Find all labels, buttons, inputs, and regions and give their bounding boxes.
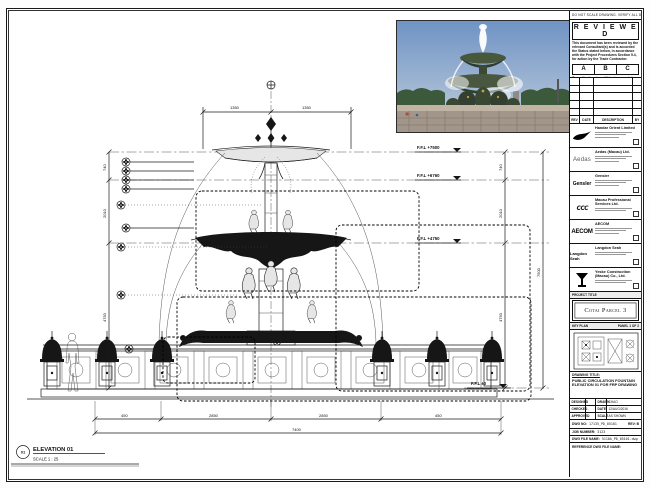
- date-label: DATE: [596, 406, 607, 412]
- gensler-logo: Gensler: [570, 172, 594, 195]
- address-lines: [595, 230, 626, 231]
- drawing-sheet-page: 1350 1350: [0, 0, 650, 488]
- drawing-title-label: DRAWING TITLE:: [572, 373, 639, 377]
- title-block-column: DO NOT SCALE DRAWING. VERIFY ALL DIMENSI…: [569, 11, 641, 477]
- address-lines: [595, 161, 619, 162]
- frp-scope-boxes: [163, 191, 531, 401]
- status-option-c: C: [617, 65, 638, 74]
- address-lines: [595, 254, 626, 255]
- designed-value: [586, 399, 596, 405]
- job-number-label: JOB NUMBER:: [572, 430, 595, 434]
- consultant-name: Aedas (Macau) Ltd.: [595, 150, 639, 154]
- address-lines: [595, 132, 632, 133]
- elevation-bubble-number: 01: [21, 450, 26, 455]
- dim-bottom-1: 450: [121, 413, 128, 418]
- key-plan-drawing: [570, 330, 641, 372]
- reviewed-stamp-paragraph-1: This document has been reviewed by the r…: [572, 42, 639, 62]
- dim-left-1: 740: [102, 164, 107, 171]
- dim-left-3: 4750: [102, 312, 107, 322]
- checked-value: -: [586, 406, 596, 412]
- checked-label: CHECKED: [570, 406, 586, 412]
- address-lines: [595, 228, 632, 229]
- consultant-name: Langdon Seah: [595, 246, 639, 250]
- date-value: 12/AUG/2016: [607, 406, 641, 412]
- consultant-list: Handar Orient Limited Aedas Aedas (Macau…: [570, 124, 641, 292]
- revision-table: REV DATE DESCRIPTION BY: [570, 78, 641, 124]
- consultant-checkbox: [633, 187, 639, 193]
- dwg-no-value: 17135_PD_05101: [589, 422, 617, 426]
- dim-bottom-total: 7400: [292, 427, 302, 432]
- handar-bird-logo-icon: [570, 124, 594, 147]
- consultant-checkbox: [633, 235, 639, 241]
- address-lines: [595, 158, 626, 159]
- job-number-row: JOB NUMBER: 3123: [570, 429, 641, 436]
- yeske-glass-logo-icon: [570, 268, 594, 291]
- dwg-file-value: 5110A_PD_05101.dwg: [602, 437, 638, 441]
- address-lines: [595, 210, 626, 211]
- finial-ornament: [255, 117, 287, 149]
- dwg-number-row: DWG NO: 17135_PD_05101 REV: B: [570, 420, 641, 429]
- elevation-label: ELEVATION 01: [33, 447, 74, 453]
- consultant-row-aedas: Aedas Aedas (Macau) Ltd.: [570, 148, 641, 172]
- level-7500: F.F.L +7500: [417, 145, 440, 150]
- key-plan-panel-note: PANEL 1 OF 2: [618, 323, 639, 329]
- consultant-checkbox: [633, 163, 639, 169]
- approved-scale-row: APPROVED - SCALE AS SHOWN: [570, 413, 641, 419]
- consultant-checkbox: [633, 283, 639, 289]
- approved-label: APPROVED: [570, 413, 586, 419]
- level-6760: F.F.L +6760: [417, 173, 440, 178]
- address-lines: [595, 282, 626, 283]
- level-4750: F.F.L +4750: [417, 236, 440, 241]
- dim-bottom-4: 450: [435, 413, 442, 418]
- scale-value: AS SHOWN: [607, 413, 641, 419]
- drawing-title: PUBLIC CIRCULATION FOUNTAIN ELEVATION 01…: [572, 379, 639, 389]
- reviewed-stamp: R E V I E W E D This document has been r…: [570, 20, 641, 78]
- consultant-name: Gensler: [595, 174, 639, 178]
- dim-left-2: 2010: [102, 208, 107, 218]
- top-dimension: 1350 1350: [201, 105, 354, 149]
- consultant-row-gensler: Gensler Gensler: [570, 172, 641, 196]
- level-zero: F.F.L ±0: [471, 381, 487, 386]
- bottom-dimension-chains: 450 2850 2850 450 7400: [93, 401, 504, 436]
- revision-header-row: REV DATE DESCRIPTION BY: [570, 116, 641, 123]
- address-lines: [595, 208, 632, 209]
- revision-row: [570, 109, 641, 117]
- date-col-header: DATE: [580, 116, 594, 123]
- elevation-scale-note: SCALE 1 : 25: [33, 457, 59, 462]
- drawing-title-block: DRAWING TITLE: PUBLIC CIRCULATION FOUNTA…: [570, 372, 641, 399]
- consultant-name: Handar Orient Limited: [595, 126, 639, 130]
- address-lines: [595, 156, 632, 157]
- approved-value: -: [586, 413, 596, 419]
- consultant-row-langdon-seah: Langdon Seah Langdon Seah: [570, 244, 641, 268]
- job-number-value: 3123: [597, 430, 605, 434]
- checked-date-row: CHECKED - DATE 12/AUG/2016: [570, 406, 641, 413]
- consultant-name: AECOM: [595, 222, 639, 226]
- address-lines: [595, 280, 632, 281]
- reviewed-stamp-title: R E V I E W E D: [572, 22, 639, 40]
- by-col-header: BY: [633, 116, 641, 123]
- signature-fields-table: DESIGNED DRAWN CHAO CHECKED - DATE 12/AU…: [570, 399, 641, 420]
- designed-label: DESIGNED: [570, 399, 586, 405]
- dim-top-right: 1350: [302, 105, 312, 110]
- consultant-checkbox: [633, 139, 639, 145]
- address-lines: [595, 182, 626, 183]
- designed-drawn-row: DESIGNED DRAWN CHAO: [570, 399, 641, 406]
- address-lines: [595, 137, 619, 138]
- key-plan-strip: KEY PLAN PANEL 1 OF 2: [570, 323, 641, 330]
- dim-right-1: 740: [498, 164, 503, 171]
- consultant-name: Yeske Construction (Macau) Co., Ltd.: [595, 270, 639, 278]
- dim-top-left: 1350: [230, 105, 240, 110]
- drawn-value: CHAO: [607, 399, 641, 405]
- description-col-header: DESCRIPTION: [594, 116, 633, 123]
- scale-label: SCALE: [596, 413, 607, 419]
- address-lines: [595, 134, 626, 135]
- project-title-strip: PROJECT TITLE: [570, 292, 641, 299]
- revision-row: [570, 86, 641, 94]
- revision-row: [570, 93, 641, 101]
- consultant-row-mps: ccc Macau Professional Services Ltd.: [570, 196, 641, 220]
- dwg-no-label: DWG NO:: [572, 422, 587, 426]
- address-lines: [595, 252, 632, 253]
- aecom-logo: AECOM: [570, 220, 594, 243]
- reference-photo: [396, 20, 570, 133]
- project-name: Cotai Parcel 3: [572, 300, 639, 321]
- dwg-file-label: DWG FILE NAME:: [572, 437, 600, 441]
- consultant-row-handar: Handar Orient Limited: [570, 124, 641, 148]
- reference-file-row: REFERENCE DWG FILE NAME:: [570, 443, 641, 450]
- key-plan-label: KEY PLAN: [572, 323, 588, 329]
- consultant-row-contractor: Yeske Construction (Macau) Co., Ltd.: [570, 268, 641, 292]
- status-option-a: A: [573, 65, 595, 74]
- dim-right-2: 2010: [498, 208, 503, 218]
- rev-col-header: REV: [570, 116, 580, 123]
- drawn-label: DRAWN: [596, 399, 607, 405]
- right-dimension-chains: 740 2010 4750 7500: [498, 150, 546, 391]
- mps-logo: ccc: [570, 196, 594, 219]
- revision-row: [570, 78, 641, 86]
- dwg-file-row: DWG FILE NAME: 5110A_PD_05101.dwg: [570, 436, 641, 443]
- note-strip: DO NOT SCALE DRAWING. VERIFY ALL DIMENSI…: [570, 11, 641, 20]
- dim-bottom-3: 2850: [319, 413, 329, 418]
- consultant-checkbox: [633, 259, 639, 265]
- consultant-name: Macau Professional Services Ltd.: [595, 198, 639, 206]
- consultant-checkbox: [633, 211, 639, 217]
- rev-label: REV:: [628, 422, 636, 426]
- status-option-row: A B C: [572, 64, 639, 75]
- langdon-seah-logo: Langdon Seah: [570, 244, 594, 267]
- status-option-b: B: [595, 65, 617, 74]
- revision-row: [570, 101, 641, 109]
- mid-tier-figures: [249, 210, 293, 233]
- reference-file-label: REFERENCE DWG FILE NAME:: [572, 445, 621, 449]
- dim-right-3: 4750: [498, 312, 503, 322]
- scale-figure: [66, 333, 79, 391]
- dim-bottom-2: 2850: [209, 413, 219, 418]
- consultant-row-aecom: AECOM AECOM: [570, 220, 641, 244]
- aedas-logo: Aedas: [570, 148, 594, 171]
- address-lines: [595, 180, 632, 181]
- rev-value: B: [637, 422, 639, 426]
- elevation-title: 01 ELEVATION 01 SCALE 1 : 25: [11, 446, 139, 467]
- address-lines: [595, 233, 619, 234]
- project-banner: Cotai Parcel 3: [570, 299, 641, 323]
- fountain-photo-graphic: [397, 21, 569, 132]
- address-lines: [595, 185, 619, 186]
- dim-right-total: 7500: [536, 267, 541, 277]
